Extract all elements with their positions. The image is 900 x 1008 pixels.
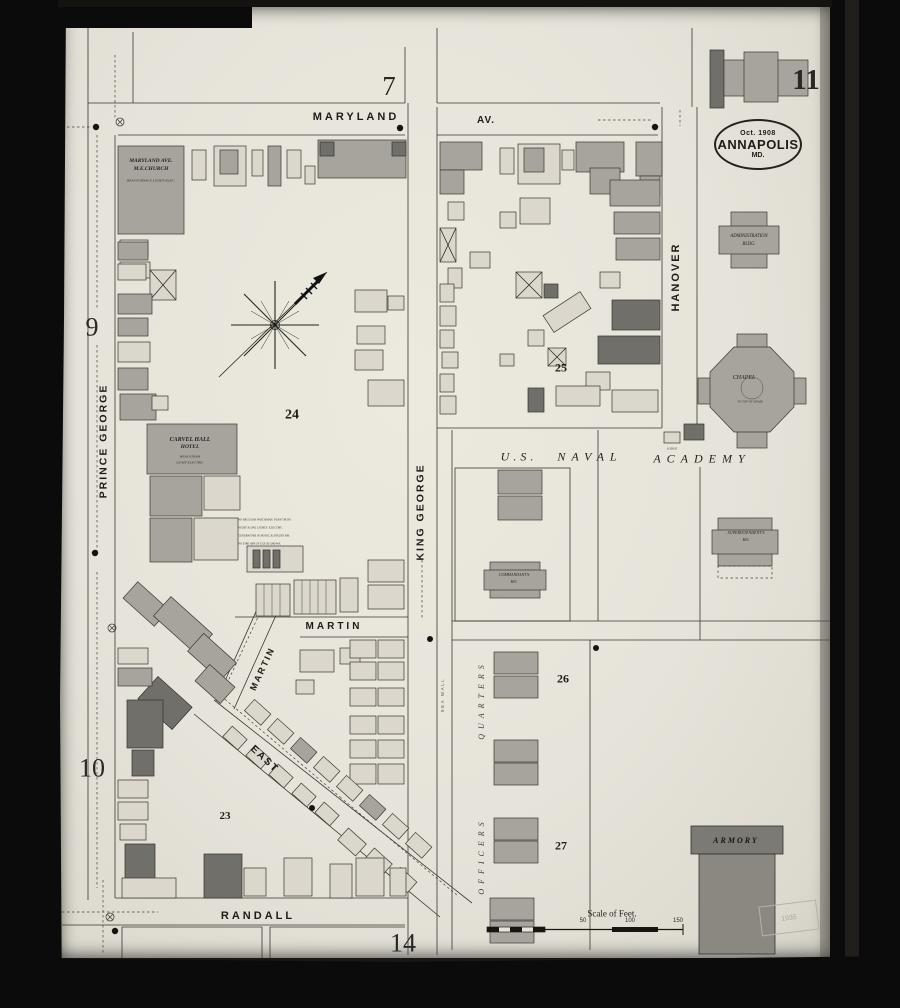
label-carvel-hall-1: CARVEL HALL <box>170 437 211 443</box>
scale-tick-100: 100 <box>625 918 635 924</box>
building-superintendents <box>712 518 778 578</box>
label-quarters: QUARTERS <box>478 660 486 740</box>
block24-prince-george-row <box>118 242 168 420</box>
adjacent-page-left-lower: 10 <box>79 754 105 781</box>
adjacent-page-bottom: 14 <box>390 929 416 956</box>
label-officers: OFFICERS <box>478 817 486 894</box>
label-me-church-1: MARYLAND AVE. <box>129 159 173 165</box>
film-border-right <box>830 0 900 1008</box>
label-carvel-hall-2: HOTEL <box>181 445 200 451</box>
sanborn-map-scan: 7 11 9 10 14 Oct. 1908 ANNAPOLIS MD. MAR… <box>0 0 900 1008</box>
adjacent-page-top: 7 <box>382 72 396 100</box>
street-label-prince-george: PRINCE GEORGE <box>98 384 109 499</box>
label-carvel-note-2: LIGHT-ELECTRIC <box>176 461 203 465</box>
plant-note: NO REGULAR WATCHMAN. PLANT RUNS NIGHT & … <box>238 518 304 550</box>
academy-label-academy: ACADEMY <box>653 453 750 466</box>
label-sea-wall: SEA WALL <box>441 678 446 713</box>
label-chapel: CHAPEL <box>733 375 756 381</box>
label-commandants-2: HO. <box>511 580 518 584</box>
street-label-martin: MARTIN <box>306 622 363 633</box>
academy-quarters-buildings <box>490 470 542 943</box>
academy-label-naval: NAVAL <box>557 451 622 464</box>
block25-houses <box>440 142 704 443</box>
block24-king-george-row <box>355 290 404 609</box>
plant-note-line: NIGHT & DAY. LIGHTS: ELECTRIC. <box>238 526 266 529</box>
building-chapel <box>698 334 806 448</box>
film-border-bottom <box>0 956 900 1008</box>
stamp-state: MD. <box>752 152 765 159</box>
label-superintendents-2: HO. <box>743 538 750 542</box>
page-number: 11 <box>792 65 819 95</box>
label-commandants-1: COMMANDANT'S <box>499 573 529 577</box>
label-me-church-2: M.E.CHURCH <box>134 167 169 173</box>
street-label-randall: RANDALL <box>221 911 295 923</box>
label-administration-2: BLDG. <box>742 242 755 247</box>
label-lodge: LODGE <box>667 447 678 450</box>
publisher-stamp: Oct. 1908 ANNAPOLIS MD. <box>714 119 802 170</box>
label-armory: ARMORY <box>713 837 759 845</box>
block-number-25: 25 <box>555 362 567 375</box>
academy-label-us: U.S. <box>501 451 538 464</box>
plant-note-line: GENERATORS IN HOTEL & ENGINE RM. <box>238 534 266 537</box>
scale-tick-50: 50 <box>580 918 587 924</box>
plant-note-line: NO REGULAR WATCHMAN. PLANT RUNS <box>238 518 266 521</box>
label-carvel-note-1: HEAT-STEAM <box>180 455 200 459</box>
block-number-23: 23 <box>220 811 231 823</box>
label-administration-1: ADMINISTRATION <box>730 234 767 239</box>
block-number-27: 27 <box>555 840 567 853</box>
block-number-26: 26 <box>557 673 569 686</box>
compass-rose-icon <box>219 272 327 377</box>
street-label-maryland-av: AV. <box>477 116 495 127</box>
stamp-city: ANNAPOLIS <box>717 137 798 152</box>
label-superintendents-1: SUPERINTENDENT'S <box>728 531 765 535</box>
block-number-24: 24 <box>285 409 299 424</box>
scale-tick-150: 150 <box>673 918 683 924</box>
stamp-date: Oct. 1908 <box>740 130 776 137</box>
street-label-hanover: HANOVER <box>671 242 683 311</box>
label-me-church-note: HEAT-FURNACE LIGHTS-ELEC. <box>127 179 176 183</box>
street-label-king-george: KING GEORGE <box>415 463 426 560</box>
label-chapel-note: TO TOP OF DOME <box>737 400 762 403</box>
street-label-maryland: MARYLAND <box>313 112 400 124</box>
plant-note-line: NO FIRE APP. IN USE AS SHOWN. <box>238 542 266 545</box>
adjacent-page-left-upper: 9 <box>86 313 99 340</box>
